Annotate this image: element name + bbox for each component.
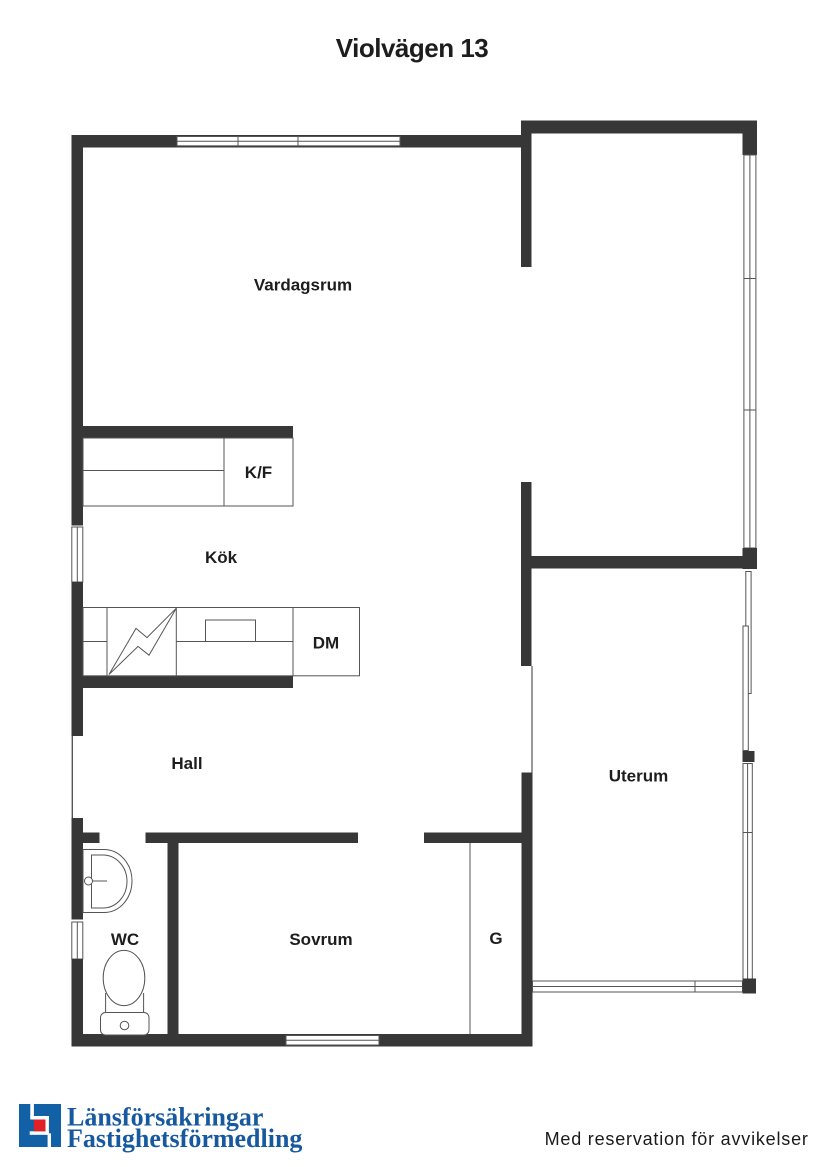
svg-text:DM: DM — [313, 634, 339, 653]
svg-text:Med reservation för avvikelser: Med reservation för avvikelser — [545, 1129, 809, 1149]
svg-text:Uterum: Uterum — [609, 767, 669, 786]
svg-text:Violvägen 13: Violvägen 13 — [336, 33, 489, 63]
svg-text:Vardagsrum: Vardagsrum — [254, 276, 352, 295]
svg-text:G: G — [489, 929, 502, 948]
svg-text:Fastighetsförmedling: Fastighetsförmedling — [67, 1124, 302, 1153]
svg-text:Hall: Hall — [171, 754, 202, 773]
svg-text:WC: WC — [111, 930, 139, 949]
svg-text:K/F: K/F — [245, 463, 272, 482]
svg-text:Kök: Kök — [205, 548, 238, 567]
svg-text:Sovrum: Sovrum — [289, 930, 352, 949]
